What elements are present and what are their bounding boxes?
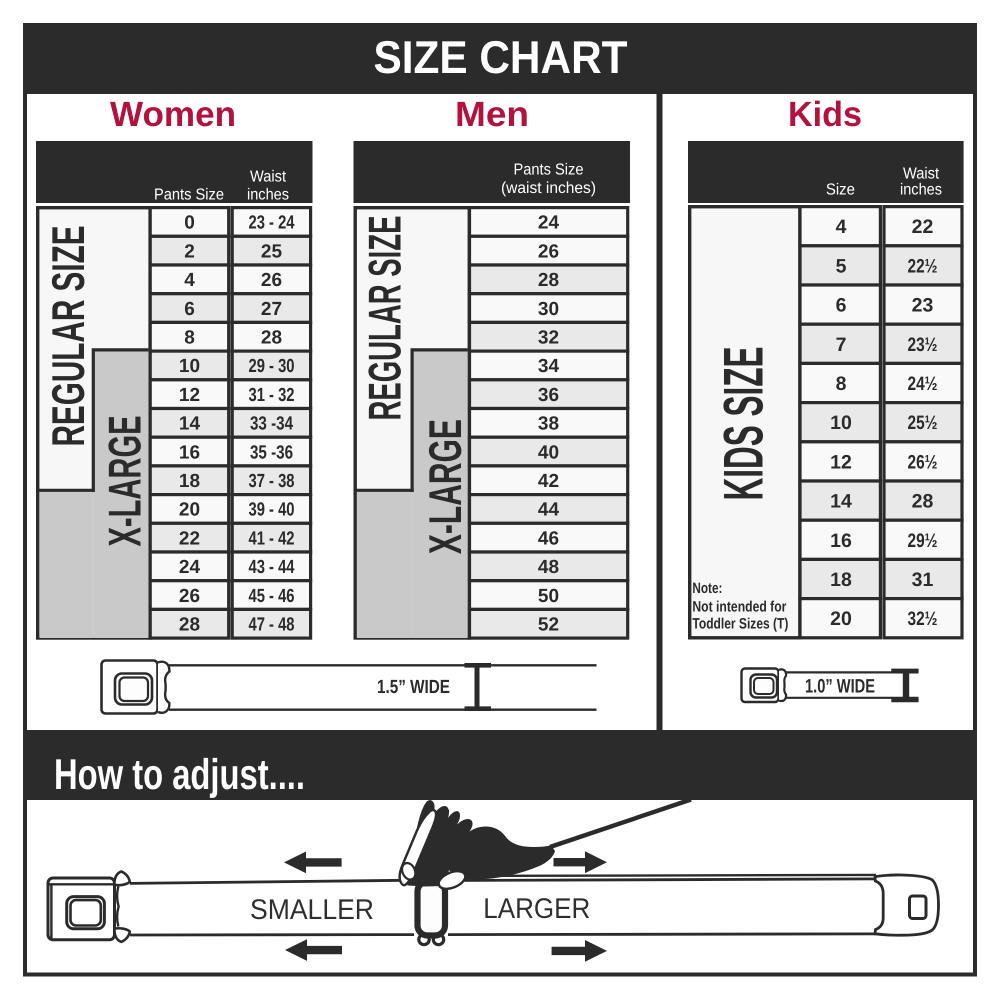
svg-text:SIZE CHART: SIZE CHART <box>374 31 628 83</box>
svg-text:Men: Men <box>455 95 529 134</box>
svg-text:Waist: Waist <box>250 168 287 185</box>
svg-text:REGULAR SIZE: REGULAR SIZE <box>359 216 411 421</box>
svg-text:Pants Size: Pants Size <box>514 162 584 179</box>
svg-text:inches: inches <box>247 186 289 203</box>
svg-text:12: 12 <box>179 385 200 406</box>
svg-text:14: 14 <box>830 491 852 513</box>
svg-text:12: 12 <box>830 451 852 473</box>
svg-text:24: 24 <box>538 213 560 234</box>
svg-text:LARGER: LARGER <box>483 893 590 925</box>
svg-text:Pants Size: Pants Size <box>154 186 224 203</box>
svg-text:16: 16 <box>179 442 200 463</box>
svg-text:47 - 48: 47 - 48 <box>249 615 295 636</box>
svg-text:14: 14 <box>179 414 201 435</box>
svg-text:6: 6 <box>184 299 195 320</box>
svg-text:26: 26 <box>179 586 200 607</box>
svg-text:23½: 23½ <box>908 334 938 356</box>
svg-text:7: 7 <box>836 334 847 356</box>
svg-text:24½: 24½ <box>908 373 938 395</box>
svg-text:Not intended for: Not intended for <box>692 598 786 615</box>
svg-text:Note:: Note: <box>692 580 722 597</box>
svg-text:X-LARGE: X-LARGE <box>419 419 471 554</box>
svg-text:37 - 38: 37 - 38 <box>249 471 295 492</box>
svg-text:4: 4 <box>184 270 195 291</box>
svg-text:24: 24 <box>179 557 201 578</box>
svg-text:32: 32 <box>538 328 559 349</box>
svg-text:45 - 46: 45 - 46 <box>249 586 295 607</box>
svg-text:5: 5 <box>836 255 847 277</box>
svg-text:22: 22 <box>179 528 200 549</box>
svg-text:18: 18 <box>179 471 200 492</box>
svg-text:Kids: Kids <box>788 95 862 134</box>
svg-text:8: 8 <box>836 373 847 395</box>
svg-text:23: 23 <box>912 295 934 317</box>
svg-text:0: 0 <box>184 213 195 234</box>
svg-text:31 - 32: 31 - 32 <box>249 385 295 406</box>
svg-text:22½: 22½ <box>908 255 938 277</box>
svg-text:Size: Size <box>826 181 855 198</box>
svg-text:Women: Women <box>110 95 236 134</box>
svg-text:26: 26 <box>538 241 559 262</box>
svg-text:(waist inches): (waist inches) <box>501 180 596 197</box>
svg-text:20: 20 <box>830 608 852 630</box>
svg-text:SMALLER: SMALLER <box>250 894 374 926</box>
svg-text:30: 30 <box>538 299 559 320</box>
svg-text:39 - 40: 39 - 40 <box>249 500 295 521</box>
svg-text:28: 28 <box>912 491 934 513</box>
svg-text:43 - 44: 43 - 44 <box>249 557 295 578</box>
svg-text:41 - 42: 41 - 42 <box>249 528 295 549</box>
svg-text:10: 10 <box>830 412 852 434</box>
svg-text:35 -36: 35 -36 <box>250 442 293 463</box>
svg-text:32½: 32½ <box>908 608 938 630</box>
svg-text:4: 4 <box>836 216 847 238</box>
svg-text:23 - 24: 23 - 24 <box>249 213 295 234</box>
svg-text:36: 36 <box>538 385 559 406</box>
svg-text:1.0” WIDE: 1.0” WIDE <box>805 676 875 698</box>
svg-text:25½: 25½ <box>908 412 938 434</box>
svg-text:1.5” WIDE: 1.5” WIDE <box>377 677 450 698</box>
svg-text:26: 26 <box>261 270 282 291</box>
svg-text:26½: 26½ <box>908 451 938 473</box>
svg-text:inches: inches <box>900 181 942 198</box>
svg-text:44: 44 <box>538 500 560 521</box>
svg-text:Waist: Waist <box>903 165 940 182</box>
svg-text:27: 27 <box>261 299 282 320</box>
svg-text:28: 28 <box>261 328 282 349</box>
svg-text:10: 10 <box>179 356 200 377</box>
svg-text:8: 8 <box>184 328 195 349</box>
svg-text:KIDS SIZE: KIDS SIZE <box>712 347 775 501</box>
svg-text:29½: 29½ <box>908 530 938 552</box>
svg-text:33 -34: 33 -34 <box>250 414 293 435</box>
svg-text:16: 16 <box>830 530 852 552</box>
svg-text:25: 25 <box>261 241 283 262</box>
svg-text:28: 28 <box>538 270 559 291</box>
svg-text:29 - 30: 29 - 30 <box>249 356 295 377</box>
svg-text:REGULAR SIZE: REGULAR SIZE <box>42 226 94 447</box>
svg-text:52: 52 <box>538 615 559 636</box>
svg-text:34: 34 <box>538 356 560 377</box>
svg-text:6: 6 <box>836 295 847 317</box>
svg-text:22: 22 <box>912 216 934 238</box>
svg-text:X-LARGE: X-LARGE <box>99 416 151 547</box>
svg-text:How to adjust....: How to adjust.... <box>54 751 305 799</box>
svg-text:50: 50 <box>538 586 559 607</box>
svg-text:38: 38 <box>538 414 559 435</box>
svg-text:40: 40 <box>538 442 559 463</box>
svg-text:20: 20 <box>179 500 200 521</box>
svg-text:2: 2 <box>184 241 195 262</box>
svg-text:Toddler Sizes (T): Toddler Sizes (T) <box>692 616 788 633</box>
svg-text:46: 46 <box>538 528 559 549</box>
svg-text:31: 31 <box>912 569 934 591</box>
svg-text:18: 18 <box>830 569 852 591</box>
svg-text:48: 48 <box>538 557 559 578</box>
svg-text:42: 42 <box>538 471 559 492</box>
svg-text:28: 28 <box>179 615 200 636</box>
